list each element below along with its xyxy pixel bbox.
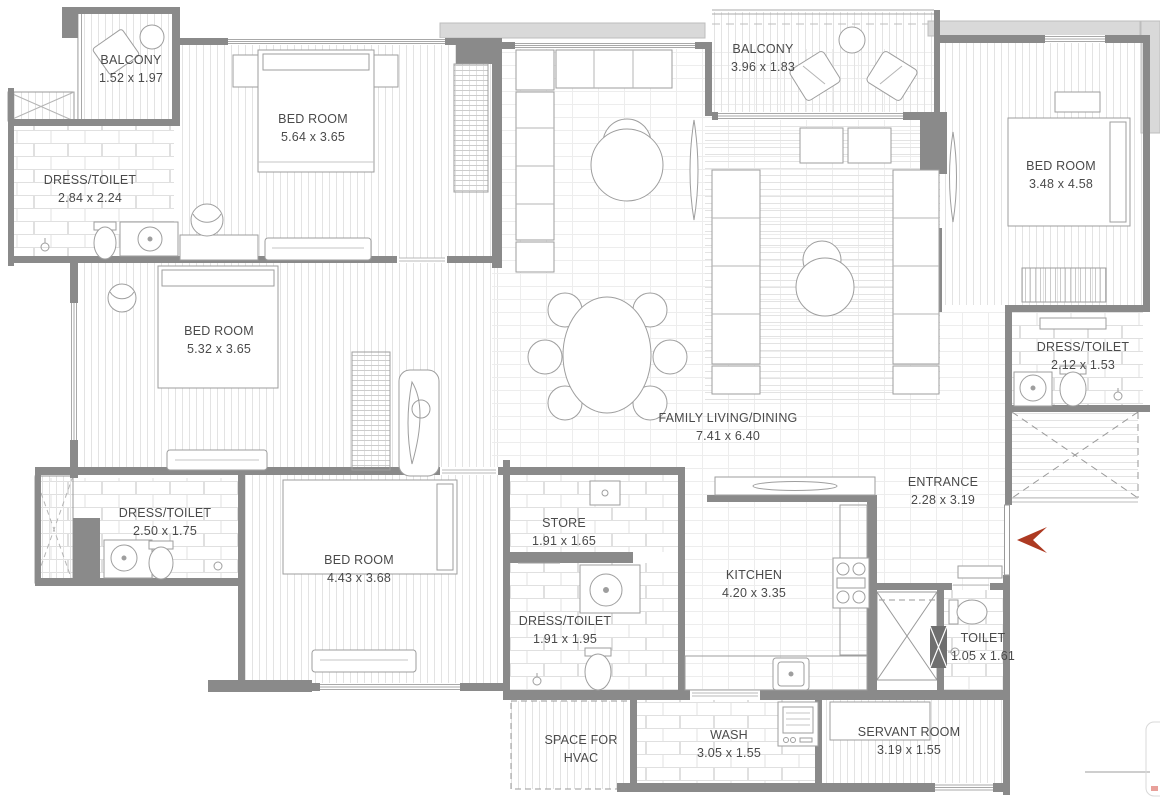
room-dims: 1.91 x 1.65	[532, 533, 596, 551]
room-dims: 5.32 x 3.65	[184, 341, 254, 359]
window-living-top	[515, 42, 695, 49]
room-name: SPACE FOR	[544, 732, 617, 750]
floor-plan: BALCONY1.52 x 1.97 BED ROOM5.64 x 3.65 D…	[0, 0, 1160, 799]
room-label-bedroom-3: BED ROOM5.32 x 3.65	[184, 323, 254, 359]
room-dims: 2.50 x 1.75	[119, 523, 211, 541]
console-icon-entrance	[958, 566, 1002, 578]
room-dims: 1.91 x 1.95	[519, 631, 611, 649]
room-name: BALCONY	[731, 41, 795, 59]
room-label-hvac: SPACE FORHVAC	[544, 732, 617, 768]
room-name: KITCHEN	[722, 567, 786, 585]
room-name: TOILET	[951, 630, 1015, 648]
room-dims: 3.96 x 1.83	[731, 59, 795, 77]
room-label-kitchen: KITCHEN4.20 x 3.35	[722, 567, 786, 603]
window-bedroom2-top	[1045, 35, 1105, 43]
room-label-balcony-1: BALCONY1.52 x 1.97	[99, 52, 163, 88]
kitchen-sink-icon	[773, 658, 809, 690]
room-dims: 3.05 x 1.55	[697, 745, 761, 763]
stove-icon	[833, 558, 869, 608]
room-dims: HVAC	[544, 750, 617, 768]
dining-set-icon	[528, 293, 687, 420]
window-balcony2-door	[718, 112, 903, 120]
room-dims: 2.84 x 2.24	[44, 190, 136, 208]
floor-plan-drawing	[0, 0, 1160, 799]
room-dims: 3.19 x 1.55	[858, 742, 960, 760]
room-name: DRESS/TOILET	[1037, 339, 1129, 357]
wardrobe-icon-bedroom3	[352, 352, 390, 470]
room-name: DRESS/TOILET	[519, 613, 611, 631]
geyser-icon-store	[590, 481, 620, 505]
room-label-balcony-2: BALCONY3.96 x 1.83	[731, 41, 795, 77]
duct-block	[930, 626, 947, 668]
entry-door-leaf	[1005, 505, 1010, 575]
room-dims: 1.52 x 1.97	[99, 70, 163, 88]
room-dims: 2.12 x 1.53	[1037, 357, 1129, 375]
room-name: SERVANT ROOM	[858, 724, 960, 742]
room-label-toilet: TOILET1.05 x 1.61	[951, 630, 1015, 666]
room-name: BED ROOM	[184, 323, 254, 341]
room-name: ENTRANCE	[908, 474, 978, 492]
window-servant-bottom	[935, 783, 993, 792]
logo-ghost	[1146, 722, 1160, 796]
room-dims: 2.28 x 3.19	[908, 492, 978, 510]
room-dims: 5.64 x 3.65	[278, 129, 348, 147]
room-label-bedroom-2: BED ROOM3.48 x 4.58	[1026, 158, 1096, 194]
room-label-family-living: FAMILY LIVING/DINING7.41 x 6.40	[659, 410, 798, 446]
room-label-dress-toilet-3: DRESS/TOILET2.12 x 1.53	[1037, 339, 1129, 375]
entry-arrow-icon	[1017, 527, 1047, 553]
window-bedroom4-bottom	[320, 683, 460, 691]
room-label-bedroom-1: BED ROOM5.64 x 3.65	[278, 111, 348, 147]
window-bedroom3-left	[70, 303, 78, 440]
room-dims: 4.20 x 3.35	[722, 585, 786, 603]
room-dims: 4.43 x 3.68	[324, 570, 394, 588]
room-label-servant-room: SERVANT ROOM3.19 x 1.55	[858, 724, 960, 760]
room-name: DRESS/TOILET	[119, 505, 211, 523]
room-name: WASH	[697, 727, 761, 745]
room-name: BED ROOM	[1026, 158, 1096, 176]
room-name: BALCONY	[99, 52, 163, 70]
room-dims: 3.48 x 4.58	[1026, 176, 1096, 194]
room-name: BED ROOM	[278, 111, 348, 129]
room-dims: 7.41 x 6.40	[659, 428, 798, 446]
room-dims: 1.05 x 1.61	[951, 648, 1015, 666]
room-label-wash: WASH3.05 x 1.55	[697, 727, 761, 763]
room-name: FAMILY LIVING/DINING	[659, 410, 798, 428]
bathtub-icon	[399, 370, 439, 476]
room-label-dress-toilet-2: DRESS/TOILET2.50 x 1.75	[119, 505, 211, 541]
room-label-bedroom-4: BED ROOM4.43 x 3.68	[324, 552, 394, 588]
room-name: BED ROOM	[324, 552, 394, 570]
room-label-dress-toilet-1: DRESS/TOILET2.84 x 2.24	[44, 172, 136, 208]
washing-machine-icon	[778, 702, 818, 746]
room-name: DRESS/TOILET	[44, 172, 136, 190]
room-label-dress-toilet-4: DRESS/TOILET1.91 x 1.95	[519, 613, 611, 649]
room-label-store: STORE1.91 x 1.65	[532, 515, 596, 551]
window-bedroom1-top	[228, 38, 445, 45]
room-label-entrance: ENTRANCE2.28 x 3.19	[908, 474, 978, 510]
room-name: STORE	[532, 515, 596, 533]
wardrobe-icon-bedroom1	[454, 64, 488, 192]
